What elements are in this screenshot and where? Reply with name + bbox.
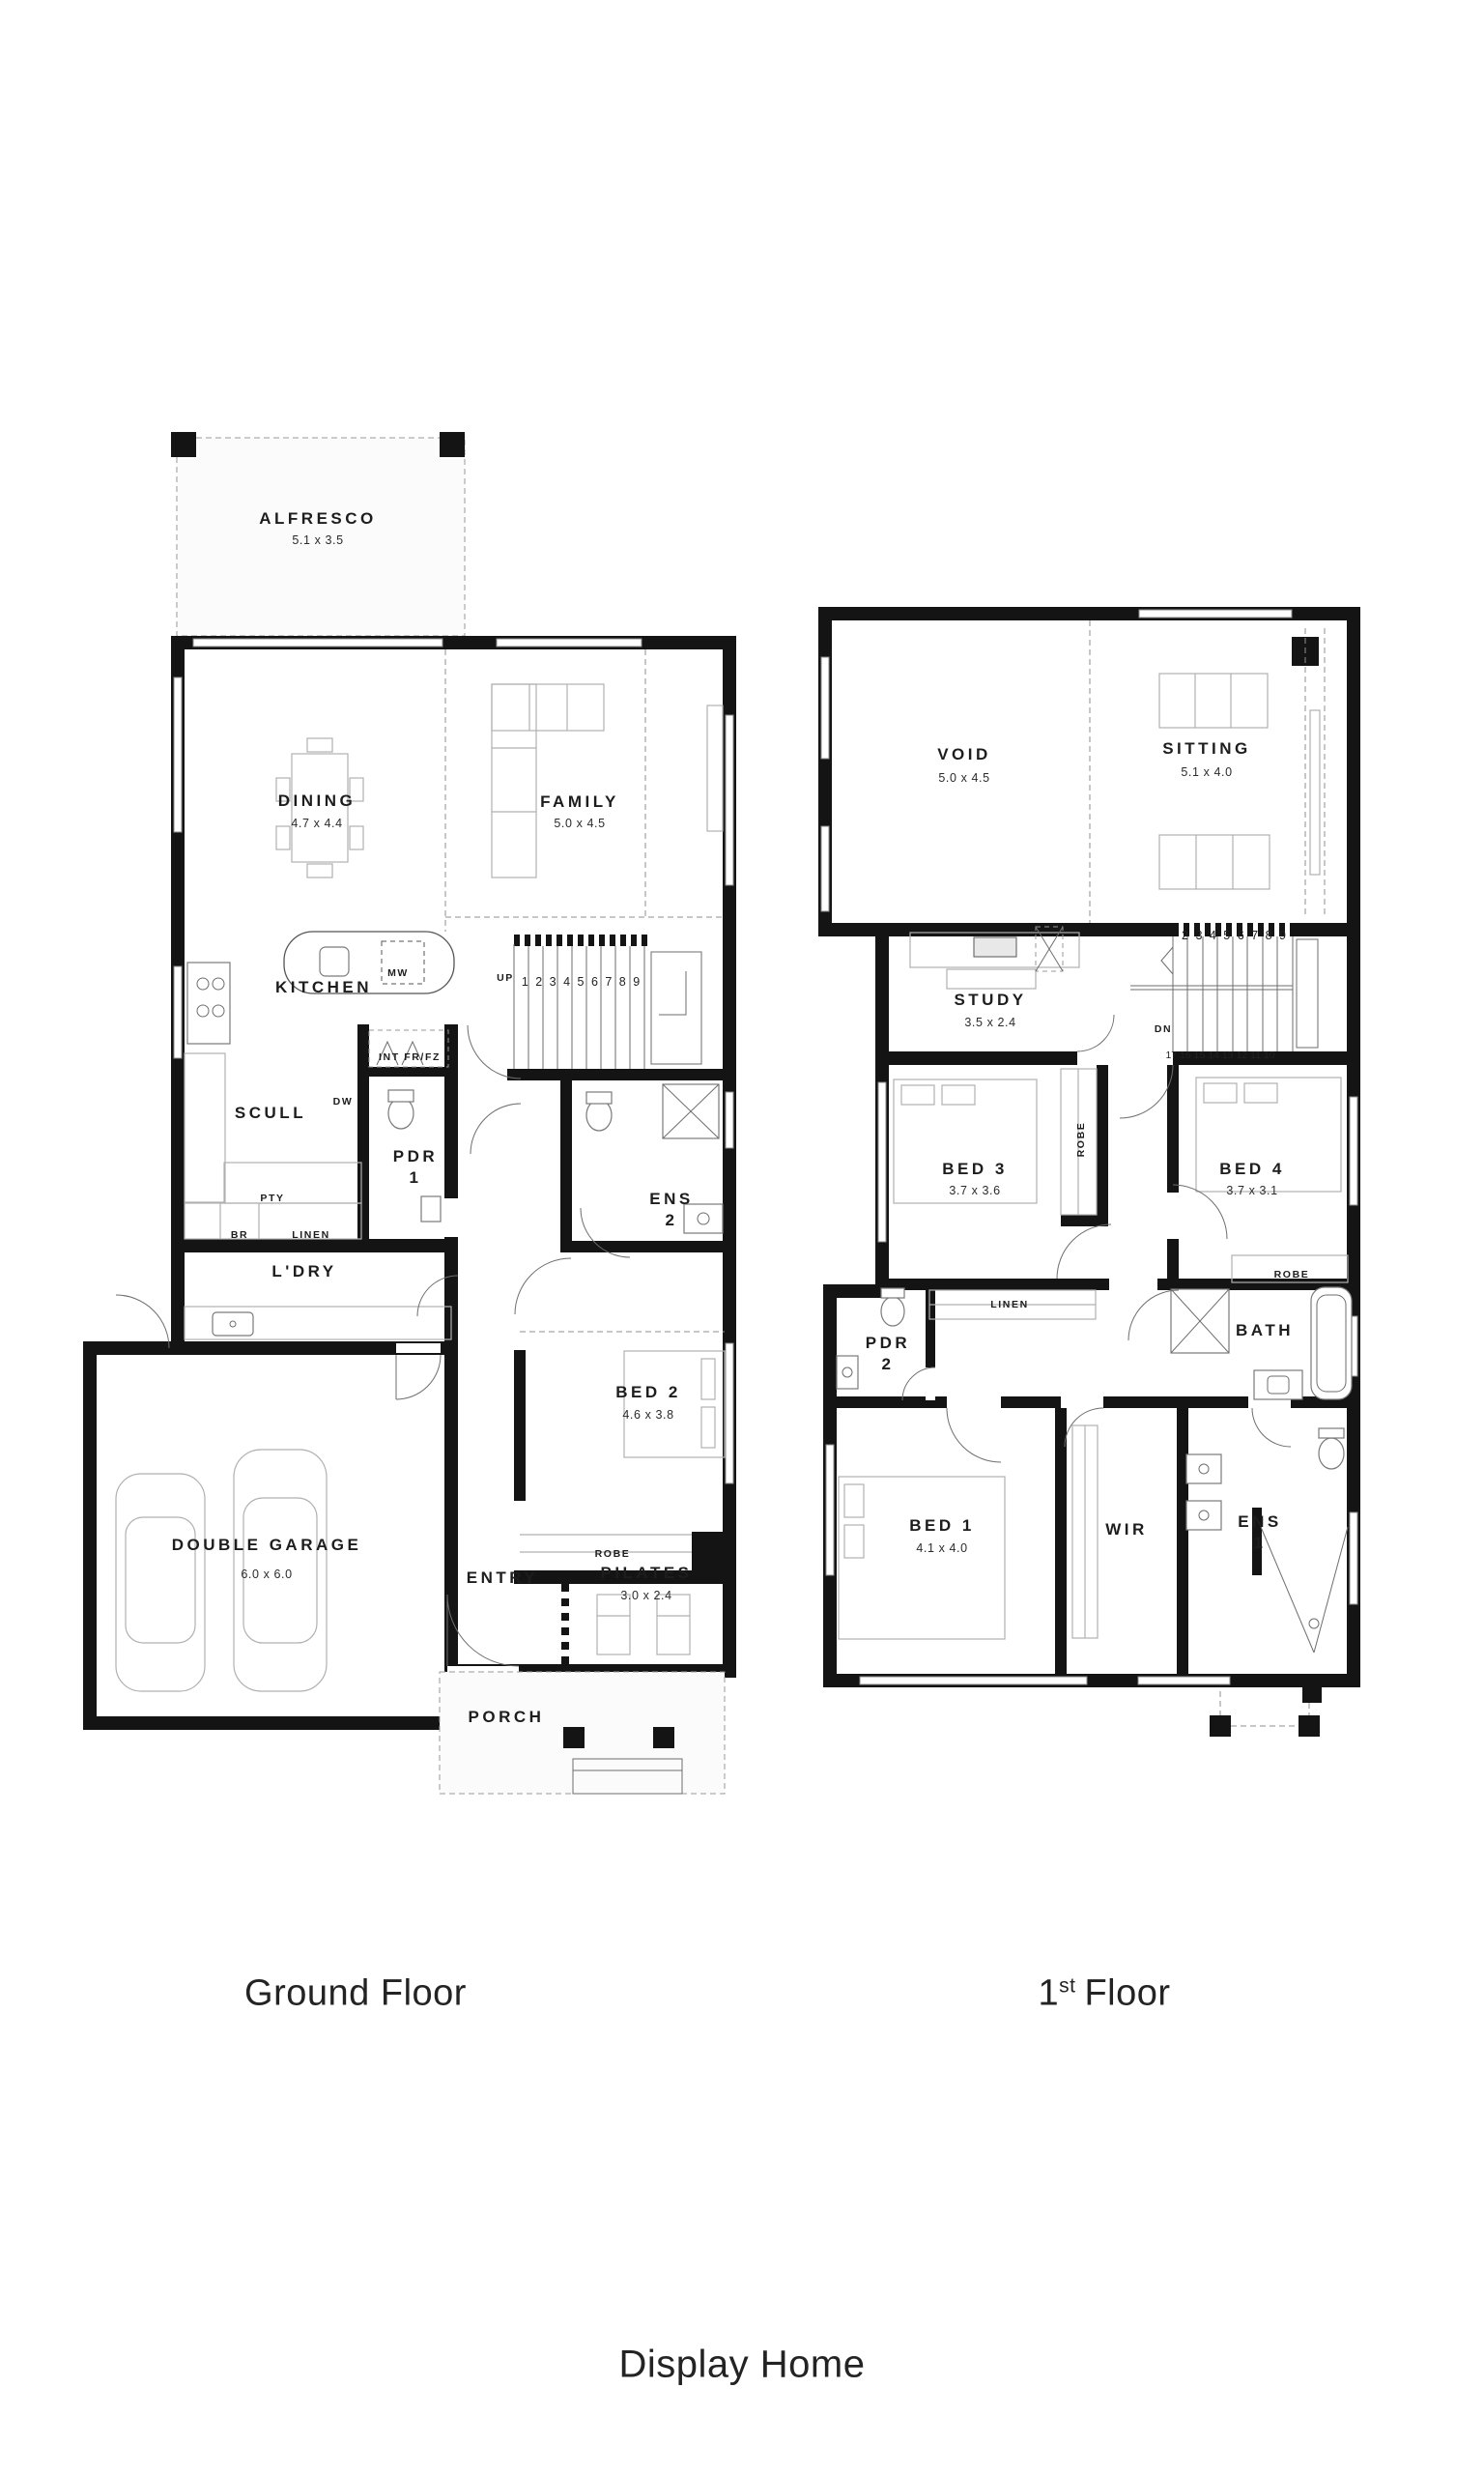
room-label-pilates: PILATES — [600, 1564, 692, 1583]
label-robe-bed3: ROBE — [1075, 1122, 1087, 1158]
room-label-alfresco: ALFRESCO — [259, 509, 377, 529]
ground-floor-caption: Ground Floor — [244, 1973, 467, 2015]
room-label-ens2: ENS 2 — [641, 1189, 702, 1231]
label-robe-bed2: ROBE — [595, 1548, 631, 1560]
room-label-garage: DOUBLE GARAGE — [172, 1536, 362, 1555]
room-label-scullery: SCULL — [235, 1104, 306, 1123]
room-dims-study: 3.5 x 2.4 — [964, 1016, 1015, 1029]
first-floor-caption-number: 1 — [1038, 1973, 1059, 2014]
room-label-sitting: SITTING — [1162, 739, 1251, 759]
room-label-pdr2: PDR 2 — [857, 1333, 919, 1375]
room-dims-bed1: 4.1 x 4.0 — [916, 1541, 967, 1555]
label-microwave: MW — [387, 967, 409, 979]
room-dims-alfresco: 5.1 x 3.5 — [292, 533, 343, 547]
floorplan-page: ALFRESCO 5.1 x 3.5 DINING 4.7 x 4.4 FAMI… — [0, 0, 1484, 2474]
room-dims-bed4: 3.7 x 3.1 — [1226, 1184, 1277, 1197]
label-broom: BR — [231, 1229, 248, 1241]
label-pantry: PTY — [260, 1193, 284, 1204]
first-floor-caption: 1stFloor — [1038, 1973, 1170, 2015]
room-dims-bed3: 3.7 x 3.6 — [949, 1184, 1000, 1197]
room-label-pdr1: PDR 1 — [385, 1146, 446, 1189]
stair-numbers-first-bottom: 17 16 15 14 13 12 11 10 — [1165, 1050, 1274, 1061]
room-label-laundry: L'DRY — [271, 1262, 336, 1281]
room-label-bed2: BED 2 — [615, 1383, 681, 1402]
room-label-porch: PORCH — [469, 1708, 545, 1727]
room-dims-family: 5.0 x 4.5 — [554, 817, 605, 830]
room-label-bed4: BED 4 — [1219, 1160, 1285, 1179]
room-label-wir: WIR — [1105, 1520, 1148, 1539]
room-dims-void: 5.0 x 4.5 — [938, 771, 989, 785]
first-floor-plan — [802, 599, 1382, 1759]
room-label-bath: BATH — [1236, 1321, 1294, 1340]
room-label-ens1: ENS 1 — [1229, 1511, 1291, 1554]
ground-laundry-fixtures — [185, 1307, 451, 1339]
room-label-void: VOID — [937, 745, 991, 764]
first-fixtures — [837, 1255, 1352, 1653]
room-label-study: STUDY — [954, 991, 1026, 1010]
room-dims-pilates: 3.0 x 2.4 — [620, 1589, 671, 1602]
room-label-kitchen: KITCHEN — [275, 978, 372, 997]
room-label-bed1: BED 1 — [909, 1516, 975, 1536]
label-fridge-freezer: INT FR/FZ — [379, 1051, 441, 1063]
label-linen-first: LINEN — [990, 1299, 1029, 1310]
stair-numbers-first-top: 2 3 4 5 6 7 8 9 — [1182, 929, 1288, 942]
room-label-entry: ENTRY — [467, 1568, 539, 1588]
label-stairs-up: UP — [497, 972, 514, 984]
stair-numbers-ground: 1 2 3 4 5 6 7 8 9 — [522, 975, 642, 989]
room-dims-sitting: 5.1 x 4.0 — [1181, 765, 1232, 779]
first-floor-caption-word: Floor — [1084, 1973, 1170, 2014]
ground-porch — [440, 1672, 725, 1794]
label-stairs-dn: DN — [1155, 1023, 1172, 1035]
label-linen-ground: LINEN — [292, 1229, 330, 1241]
footer-caption: Display Home — [619, 2344, 866, 2387]
label-dishwasher: DW — [333, 1096, 354, 1108]
room-label-bed3: BED 3 — [942, 1160, 1008, 1179]
room-label-dining: DINING — [278, 791, 357, 811]
ground-stairs — [514, 935, 701, 1069]
room-dims-bed2: 4.6 x 3.8 — [622, 1408, 673, 1422]
room-dims-garage: 6.0 x 6.0 — [241, 1568, 292, 1581]
room-label-family: FAMILY — [540, 792, 619, 812]
label-robe-bed4: ROBE — [1274, 1269, 1310, 1280]
first-floor-caption-ordinal: st — [1059, 1975, 1075, 1998]
room-dims-dining: 4.7 x 4.4 — [291, 817, 342, 830]
